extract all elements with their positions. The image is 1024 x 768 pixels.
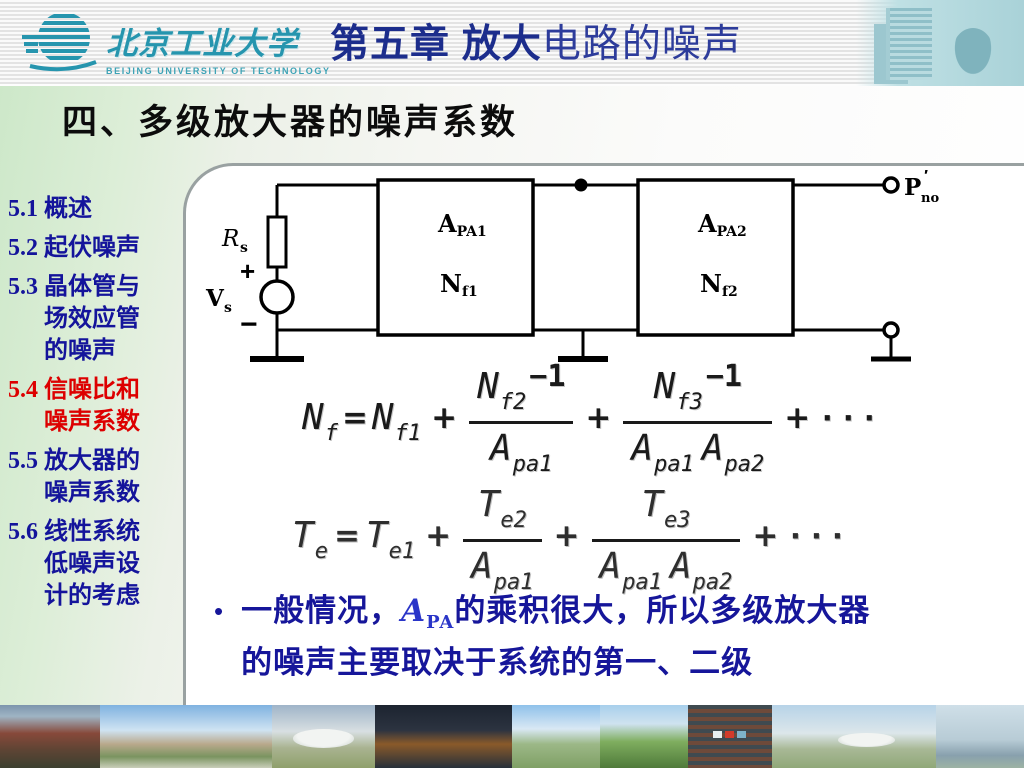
campus-photo-2 [100, 705, 272, 768]
sidebar-item-5-2[interactable]: 5.2起伏噪声 [8, 232, 184, 264]
university-name-en: BEIJING UNIVERSITY OF TECHNOLOGY [106, 66, 331, 76]
sidebar-item-5-1[interactable]: 5.1概述 [8, 193, 184, 225]
campus-photo-7 [688, 705, 772, 768]
resistor-symbol [268, 217, 286, 267]
svg-text:R: R [221, 226, 239, 252]
tree-graphic [952, 28, 994, 78]
svg-text:′: ′ [924, 170, 928, 186]
bullet-text: 一般情况，APA的乘积很大，所以多级放大器 的噪声主要取决于系统的第一、二级 [241, 591, 870, 683]
bullet-dot-icon: • [214, 591, 223, 683]
circuit-labels: R s + V s − P ′ no [205, 170, 939, 341]
university-logo: 北京工业大学 BEIJING UNIVERSITY OF TECHNOLOGY [22, 8, 331, 76]
content-panel: APA1 Nf1 APA2 Nf2 R s + V s − P [183, 163, 1024, 705]
gain-variable: APA [401, 593, 454, 628]
svg-text:+: + [240, 256, 255, 286]
campus-photo-1 [0, 705, 100, 768]
amplifier-block-1: APA1 Nf1 [378, 180, 533, 335]
svg-text:P: P [904, 174, 921, 201]
chapter-title: 第五章 放大电路的噪声 [330, 13, 742, 69]
bullet-point: • 一般情况，APA的乘积很大，所以多级放大器 的噪声主要取决于系统的第一、二级 [214, 591, 870, 683]
campus-photo-5 [512, 705, 600, 768]
svg-text:s: s [224, 300, 232, 316]
campus-photo-9 [936, 705, 1024, 768]
slide-title: 四、多级放大器的噪声系数 [62, 94, 518, 145]
campus-photo-4 [375, 705, 512, 768]
sidebar-nav: 5.1概述 5.2起伏噪声 5.3晶体管与 场效应管 的噪声 5.4信噪比和 噪… [8, 193, 184, 619]
sidebar-item-5-6[interactable]: 5.6线性系统 低噪声设 计的考虑 [8, 516, 184, 612]
filmstrip [0, 705, 1024, 768]
formula-noise-figure: Nf = Nf1 + Nf2−1 Apa1 + Nf3−1 Apa1Apa2 +… [302, 366, 885, 469]
svg-text:V: V [205, 285, 225, 312]
flags-graphic [713, 731, 746, 738]
voltage-source-symbol [261, 281, 293, 313]
campus-building-image [856, 0, 1024, 86]
formula-noise-temperature: Te = Te1 + Te2 Apa1 + Te3 Apa1Apa2 + ··· [292, 484, 853, 587]
sidebar-item-5-5[interactable]: 5.5放大器的 噪声系数 [8, 445, 184, 509]
svg-text:−: − [240, 308, 258, 341]
building-tower-graphic [886, 8, 932, 80]
circuit-diagram: APA1 Nf1 APA2 Nf2 R s + V s − P [188, 170, 1018, 385]
campus-photo-8 [772, 705, 936, 768]
header-bar: 北京工业大学 BEIJING UNIVERSITY OF TECHNOLOGY … [0, 0, 1024, 86]
slide: 北京工业大学 BEIJING UNIVERSITY OF TECHNOLOGY … [0, 0, 1024, 768]
university-logo-icon [22, 8, 100, 74]
output-terminal [884, 178, 898, 337]
campus-photo-3 [272, 705, 375, 768]
sidebar-item-5-4-active[interactable]: 5.4信噪比和 噪声系数 [8, 374, 184, 438]
svg-text:no: no [921, 191, 939, 206]
chapter-title-rest: 电路的噪声 [542, 23, 742, 66]
stadium-dome-graphic [293, 729, 355, 748]
junction-dot [575, 179, 588, 192]
university-name: 北京工业大学 [106, 18, 331, 63]
chapter-title-bold: 第五章 放大 [330, 23, 542, 66]
amplifier-block-2: APA2 Nf2 [638, 180, 793, 335]
stadium-dome-graphic [838, 733, 895, 747]
sidebar-item-5-3[interactable]: 5.3晶体管与 场效应管 的噪声 [8, 271, 184, 367]
svg-text:s: s [240, 240, 248, 256]
campus-photo-6 [600, 705, 688, 768]
